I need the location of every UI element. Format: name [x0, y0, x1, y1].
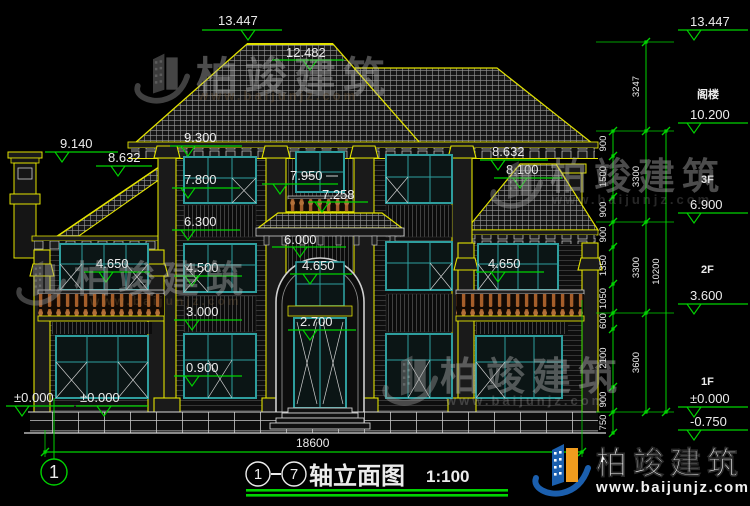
- svg-text:4.650: 4.650: [488, 256, 521, 271]
- window-3f-right: [386, 155, 452, 203]
- scale-text: 1:100: [426, 467, 469, 486]
- level-marker-13.447: 13.447: [678, 14, 748, 40]
- svg-text:-0.750: -0.750: [690, 414, 727, 429]
- watermark-url: www.baijunjz.com: [551, 192, 712, 207]
- floor-label-1f: 1F: [701, 376, 714, 388]
- svg-text:750: 750: [598, 415, 609, 431]
- axis-to: 7: [290, 466, 298, 483]
- svg-text:0.900: 0.900: [186, 360, 219, 375]
- entrance: [276, 258, 364, 412]
- level-marker-13.447: 13.447: [202, 13, 282, 40]
- svg-text:1: 1: [49, 462, 59, 482]
- svg-text:10200: 10200: [651, 258, 662, 284]
- logo-name: 柏竣建筑: [596, 446, 744, 481]
- svg-text:9.300: 9.300: [184, 130, 217, 145]
- svg-text:7.950: 7.950: [290, 168, 323, 183]
- balustrade-right-wing: [456, 290, 584, 321]
- axis-from: 1: [254, 466, 262, 483]
- svg-text:3300: 3300: [631, 257, 642, 278]
- elevation-drawing: 13.44712.4829.1408.6329.3007.8007.9507.2…: [0, 0, 750, 506]
- watermark-4: 柏竣建筑www.baijunjz.com: [385, 356, 624, 408]
- window-2f-right: [386, 242, 452, 290]
- company-logo: 柏竣建筑www.baijunjz.com: [535, 444, 749, 496]
- svg-text:13.447: 13.447: [690, 14, 730, 29]
- svg-text:4.650: 4.650: [302, 258, 335, 273]
- svg-text:1050: 1050: [598, 288, 609, 309]
- svg-text:9.140: 9.140: [60, 136, 93, 151]
- svg-text:600: 600: [598, 313, 609, 329]
- svg-text:13.447: 13.447: [218, 13, 258, 28]
- drawing-title: 17轴立面图1:100: [246, 462, 508, 497]
- svg-text:3.600: 3.600: [690, 288, 723, 303]
- watermark-url: www.baijunjz.com: [89, 294, 242, 308]
- svg-text:6.000: 6.000: [284, 232, 317, 247]
- svg-text:6.300: 6.300: [184, 214, 217, 229]
- svg-text:8.632: 8.632: [492, 144, 525, 159]
- level-marker-3.600: 3.600: [678, 288, 748, 314]
- svg-text:7.258: 7.258: [322, 187, 355, 202]
- floor-label-attic: 阁楼: [697, 87, 719, 101]
- svg-text:±0.000: ±0.000: [80, 390, 120, 405]
- floor-label-2f: 2F: [701, 264, 714, 276]
- window-1f-left-wing: [56, 336, 148, 398]
- svg-text:3247: 3247: [631, 76, 642, 97]
- watermark-1: 柏竣建筑www.baijunjz.com: [137, 54, 392, 103]
- svg-text:±0.000: ±0.000: [690, 391, 730, 406]
- cad-canvas: 13.44712.4829.1408.6329.3007.8007.9507.2…: [0, 0, 750, 506]
- svg-text:10.200: 10.200: [690, 107, 730, 122]
- svg-text:8.632: 8.632: [108, 150, 141, 165]
- svg-text:3600: 3600: [631, 352, 642, 373]
- level-marker--0.750: -0.750: [678, 414, 748, 440]
- svg-text:2.700: 2.700: [300, 314, 333, 329]
- level-marker-10.200: 10.200: [678, 107, 748, 133]
- logo-url: www.baijunjz.com: [595, 479, 749, 496]
- watermark-url: www.baijunjz.com: [445, 393, 606, 408]
- svg-text:18600: 18600: [296, 436, 330, 450]
- svg-text:1350: 1350: [598, 255, 609, 276]
- svg-text:±0.000: ±0.000: [14, 390, 54, 405]
- svg-text:900: 900: [598, 136, 609, 152]
- dim-chain-middle: 3247330033003600: [631, 38, 650, 416]
- title-text: 轴立面图: [309, 462, 405, 490]
- svg-text:900: 900: [598, 227, 609, 243]
- svg-text:7.800: 7.800: [184, 172, 217, 187]
- watermark-url: www.baijunjz.com: [197, 88, 358, 103]
- eave-cornice-right-wing: [458, 230, 598, 244]
- watermark-name: 柏竣建筑: [550, 155, 726, 197]
- entrance-door: [294, 318, 346, 408]
